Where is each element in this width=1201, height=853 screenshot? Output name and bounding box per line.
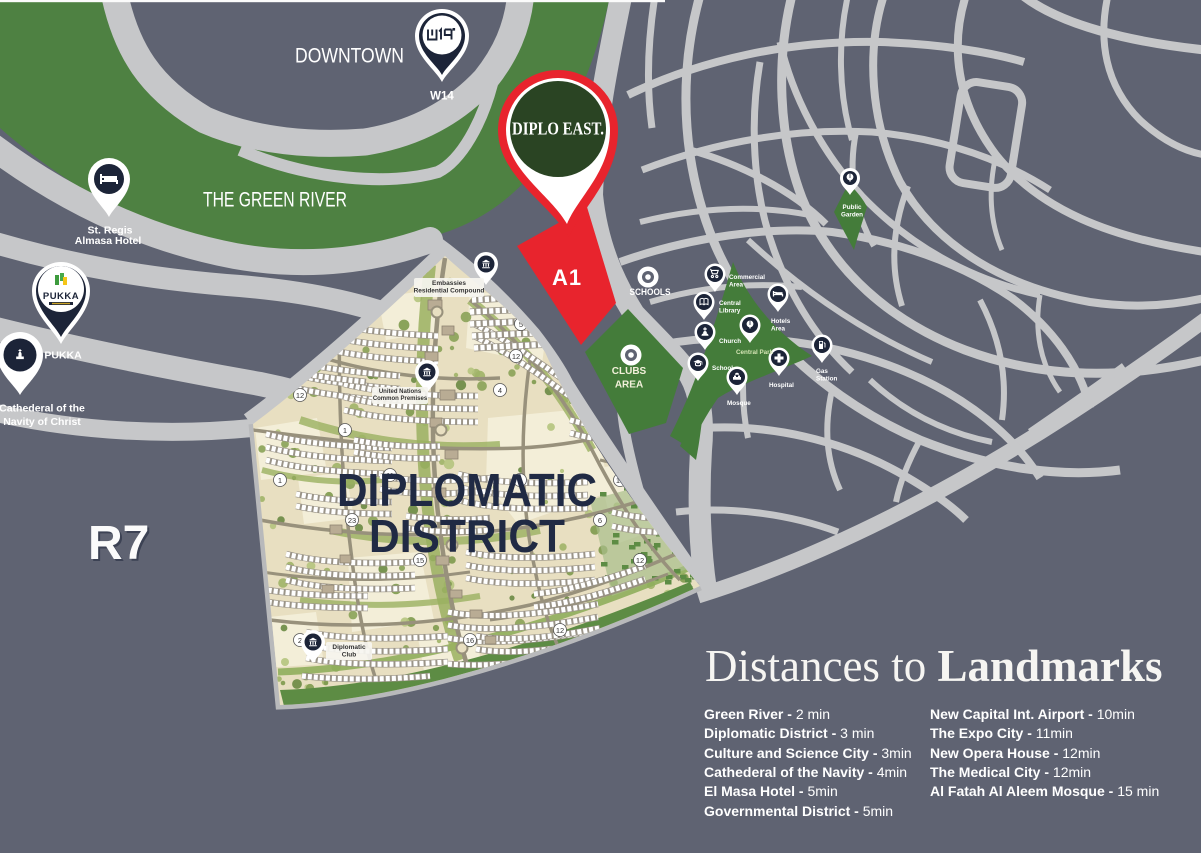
svg-text:Culture and Science City - 3mi: Culture and Science City - 3min <box>704 745 912 761</box>
svg-text:United Nations: United Nations <box>379 389 422 395</box>
svg-text:W14: W14 <box>430 91 454 103</box>
svg-text:DOWNTOWN: DOWNTOWN <box>295 45 404 68</box>
svg-text:Almasa Hotel: Almasa Hotel <box>75 235 142 247</box>
svg-text:A1: A1 <box>552 265 582 290</box>
svg-text:THE GREEN RIVER: THE GREEN RIVER <box>203 189 347 212</box>
svg-text:Navity of Christ: Navity of Christ <box>3 416 81 428</box>
svg-text:PUKKA: PUKKA <box>44 350 82 362</box>
svg-text:Distances to Landmarks: Distances to Landmarks <box>705 641 1163 691</box>
svg-text:The Medical City - 12min: The Medical City - 12min <box>930 764 1091 780</box>
svg-text:DIPLOMATIC: DIPLOMATIC <box>337 464 597 516</box>
svg-text:DIPLO EAST.: DIPLO EAST. <box>512 119 604 139</box>
svg-text:Diplomatic District - 3 min: Diplomatic District - 3 min <box>704 725 874 741</box>
svg-text:DISTRICT: DISTRICT <box>369 510 565 562</box>
svg-text:Cathederal of the: Cathederal of the <box>0 403 85 415</box>
svg-text:12: 12 <box>512 352 520 361</box>
svg-text:CLUBS: CLUBS <box>612 366 647 377</box>
svg-text:1: 1 <box>343 426 347 435</box>
svg-text:School: School <box>712 365 733 372</box>
svg-text:Gas: Gas <box>816 368 828 375</box>
svg-text:12: 12 <box>556 626 564 635</box>
svg-text:New Capital Int. Airport - 10m: New Capital Int. Airport - 10min <box>930 706 1135 722</box>
svg-text:Area: Area <box>771 325 785 332</box>
svg-text:23: 23 <box>348 516 356 525</box>
svg-text:1: 1 <box>278 476 282 485</box>
svg-text:New Opera House - 12min: New Opera House - 12min <box>930 745 1100 761</box>
svg-text:Embassies: Embassies <box>432 280 466 287</box>
svg-text:Mosque: Mosque <box>727 400 751 407</box>
svg-text:Club: Club <box>342 652 356 659</box>
svg-text:16: 16 <box>466 636 474 645</box>
svg-text:Library: Library <box>719 307 741 314</box>
svg-text:12: 12 <box>636 556 644 565</box>
svg-text:Station: Station <box>816 375 837 382</box>
svg-text:Church: Church <box>719 338 741 345</box>
svg-text:Area: Area <box>729 281 743 288</box>
svg-text:Al Fatah Al Aleem Mosque - 15: Al Fatah Al Aleem Mosque - 15 min <box>930 783 1159 799</box>
svg-text:PUKKA: PUKKA <box>43 291 79 302</box>
svg-text:Diplomatic: Diplomatic <box>332 644 366 651</box>
svg-text:The Expo City - 11min: The Expo City - 11min <box>930 725 1073 741</box>
svg-text:Garden: Garden <box>841 211 863 218</box>
svg-text:12: 12 <box>296 391 304 400</box>
svg-text:Residential Compound: Residential Compound <box>414 288 485 295</box>
svg-text:Central Park: Central Park <box>736 349 774 356</box>
svg-text:Cathederal of the Navity - 4mi: Cathederal of the Navity - 4min <box>704 764 907 780</box>
svg-text:Green River - 2 min: Green River - 2 min <box>704 706 830 722</box>
svg-text:El Masa Hotel - 5min: El Masa Hotel - 5min <box>704 783 838 799</box>
svg-text:4: 4 <box>498 386 502 395</box>
svg-text:Hospital: Hospital <box>769 382 794 389</box>
svg-text:6: 6 <box>598 516 602 525</box>
svg-text:Governmental District - 5min: Governmental District - 5min <box>704 803 893 819</box>
svg-text:Central: Central <box>719 300 741 307</box>
svg-text:SCHOOLS: SCHOOLS <box>630 287 671 298</box>
svg-text:Hotels: Hotels <box>771 318 791 325</box>
svg-text:R7: R7 <box>88 517 149 570</box>
svg-text:AREA: AREA <box>615 380 643 391</box>
svg-text:Public: Public <box>843 204 862 211</box>
svg-text:Commercial: Commercial <box>729 274 765 281</box>
svg-text:Common Premises: Common Premises <box>373 396 428 402</box>
